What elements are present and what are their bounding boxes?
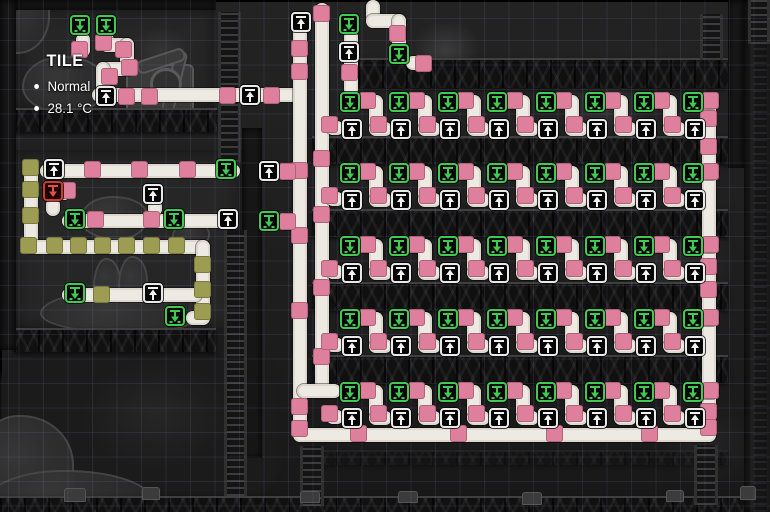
liquid-input-port-icon[interactable] [391,190,411,210]
liquid-output-port-icon[interactable] [70,15,90,35]
liquid-input-port-icon[interactable] [391,119,411,139]
liquid-input-port-icon[interactable] [538,190,558,210]
liquid-output-port-icon[interactable] [585,163,605,183]
liquid-output-port-icon[interactable] [340,163,360,183]
liquid-input-port-icon[interactable] [339,42,359,62]
liquid-input-port-icon[interactable] [636,190,656,210]
liquid-input-port-icon[interactable] [218,209,238,229]
liquid-input-port-icon[interactable] [440,263,460,283]
liquid-output-port-icon[interactable] [585,382,605,402]
liquid-output-port-icon[interactable] [634,382,654,402]
liquid-input-port-icon[interactable] [342,119,362,139]
liquid-output-port-icon[interactable] [165,306,185,326]
liquid-input-port-icon[interactable] [538,119,558,139]
tooltip-item-label: Normal [48,78,91,94]
port-layer [0,0,770,512]
liquid-input-port-icon[interactable] [143,283,163,303]
liquid-input-port-icon[interactable] [636,336,656,356]
bullet-icon [34,106,39,111]
liquid-input-port-icon[interactable] [685,263,705,283]
liquid-output-port-icon[interactable] [487,92,507,112]
liquid-output-port-icon[interactable] [216,159,236,179]
liquid-output-port-icon[interactable] [683,92,703,112]
liquid-output-port-icon[interactable] [683,309,703,329]
bullet-icon [34,84,39,89]
liquid-input-port-icon[interactable] [538,336,558,356]
liquid-input-port-icon[interactable] [391,263,411,283]
liquid-input-port-icon[interactable] [685,408,705,428]
liquid-output-port-icon[interactable] [438,236,458,256]
liquid-input-port-icon[interactable] [587,408,607,428]
liquid-input-port-icon[interactable] [391,336,411,356]
liquid-output-port-icon[interactable] [389,236,409,256]
liquid-input-port-icon[interactable] [342,408,362,428]
liquid-input-port-icon[interactable] [685,119,705,139]
liquid-input-port-icon[interactable] [538,408,558,428]
tooltip-item-label: 28.1 °C [48,100,93,116]
liquid-input-port-icon[interactable] [636,263,656,283]
game-viewport: TILE Normal 28.1 °C [0,0,770,512]
liquid-output-port-icon[interactable] [259,211,279,231]
liquid-output-port-icon[interactable] [585,236,605,256]
liquid-input-port-icon[interactable] [440,190,460,210]
liquid-output-port-icon[interactable] [536,92,556,112]
liquid-output-port-icon[interactable] [65,283,85,303]
liquid-input-port-icon[interactable] [440,119,460,139]
liquid-input-port-icon[interactable] [587,263,607,283]
liquid-output-port-icon[interactable] [340,236,360,256]
liquid-output-port-icon[interactable] [634,236,654,256]
liquid-output-port-icon[interactable] [389,44,409,64]
liquid-output-port-icon[interactable] [340,382,360,402]
liquid-input-port-icon[interactable] [489,190,509,210]
liquid-output-port-icon[interactable] [634,92,654,112]
liquid-output-port-icon[interactable] [536,236,556,256]
liquid-output-port-icon[interactable] [438,163,458,183]
liquid-output-port-icon[interactable] [585,309,605,329]
liquid-input-port-icon[interactable] [259,161,279,181]
liquid-output-port-icon[interactable] [438,309,458,329]
liquid-output-port-icon[interactable] [536,163,556,183]
liquid-input-port-icon[interactable] [489,119,509,139]
liquid-input-port-icon[interactable] [587,336,607,356]
liquid-input-port-icon[interactable] [44,159,64,179]
liquid-output-port-icon[interactable] [389,309,409,329]
liquid-output-port-icon[interactable] [536,309,556,329]
liquid-input-port-icon[interactable] [685,336,705,356]
liquid-output-port-icon[interactable] [65,209,85,229]
liquid-output-port-icon[interactable] [487,236,507,256]
liquid-input-port-icon[interactable] [440,336,460,356]
liquid-input-port-icon[interactable] [342,336,362,356]
liquid-input-port-icon[interactable] [538,263,558,283]
liquid-output-port-icon[interactable] [487,382,507,402]
liquid-input-port-icon[interactable] [685,190,705,210]
liquid-input-port-icon[interactable] [342,263,362,283]
liquid-output-port-icon[interactable] [438,92,458,112]
liquid-output-port-icon[interactable] [340,92,360,112]
liquid-output-port-icon[interactable] [634,163,654,183]
tooltip-title: TILE [47,51,84,71]
liquid-output-port-icon[interactable] [487,163,507,183]
liquid-input-port-icon[interactable] [342,190,362,210]
liquid-output-port-icon[interactable] [487,309,507,329]
liquid-output-port-icon[interactable] [585,92,605,112]
liquid-output-port-icon[interactable] [389,163,409,183]
blocked-port-icon[interactable] [43,181,63,201]
liquid-input-port-icon[interactable] [291,12,311,32]
liquid-input-port-icon[interactable] [240,85,260,105]
liquid-input-port-icon[interactable] [587,190,607,210]
liquid-input-port-icon[interactable] [636,119,656,139]
liquid-output-port-icon[interactable] [96,15,116,35]
liquid-output-port-icon[interactable] [683,236,703,256]
liquid-output-port-icon[interactable] [389,382,409,402]
liquid-input-port-icon[interactable] [391,408,411,428]
liquid-input-port-icon[interactable] [96,86,116,106]
liquid-output-port-icon[interactable] [536,382,556,402]
liquid-input-port-icon[interactable] [440,408,460,428]
liquid-output-port-icon[interactable] [438,382,458,402]
liquid-input-port-icon[interactable] [636,408,656,428]
liquid-output-port-icon[interactable] [339,14,359,34]
liquid-output-port-icon[interactable] [634,309,654,329]
liquid-input-port-icon[interactable] [489,263,509,283]
liquid-input-port-icon[interactable] [489,408,509,428]
liquid-output-port-icon[interactable] [340,309,360,329]
liquid-output-port-icon[interactable] [683,382,703,402]
liquid-input-port-icon[interactable] [143,184,163,204]
liquid-output-port-icon[interactable] [389,92,409,112]
liquid-output-port-icon[interactable] [164,209,184,229]
liquid-input-port-icon[interactable] [489,336,509,356]
liquid-input-port-icon[interactable] [587,119,607,139]
liquid-output-port-icon[interactable] [683,163,703,183]
